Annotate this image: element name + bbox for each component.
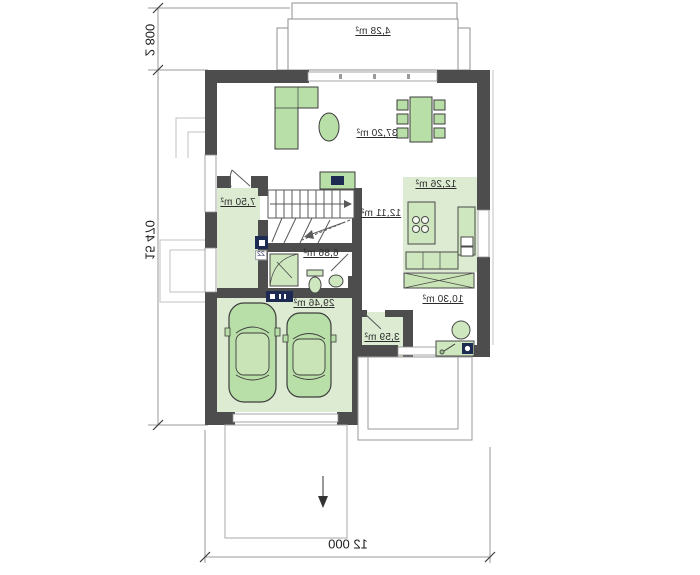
room-label-hall: 12,11 m²: [361, 209, 401, 219]
sink-icon: [461, 247, 473, 256]
dining-table-icon: [410, 97, 432, 142]
utility-fixtures: [436, 321, 474, 356]
dimension-terrace-depth: 2 800: [134, 34, 167, 47]
room-label-garage: 29,46 m²: [293, 299, 334, 309]
tv-icon: [331, 176, 344, 185]
room-label-living: 37,20 m²: [356, 129, 397, 139]
chair-icon: [434, 100, 445, 110]
room-label-terrace: 4,28 m²: [355, 27, 390, 37]
room-label-utility: 10,30 m²: [422, 295, 463, 305]
floor-plan: 4,28 m² 37,20 m² 12,26 m² 7,50 m² 12,11 …: [0, 0, 700, 575]
entrance-porch: [358, 357, 472, 440]
dimension-total-width: 12 000: [328, 538, 368, 551]
kitchen-island-icon: [408, 202, 435, 244]
stairs: [268, 190, 354, 243]
coffee-table-icon: [319, 113, 339, 141]
chair-icon: [397, 114, 408, 124]
cooktop-burner-icon: [413, 217, 420, 224]
chair-icon: [397, 128, 408, 138]
chair-icon: [397, 100, 408, 110]
cooktop-burner-icon: [422, 217, 429, 224]
car-icon: [283, 313, 336, 397]
chair-icon: [434, 128, 445, 138]
bathroom-fixtures: [270, 254, 343, 293]
room-label-room: 7,50 m²: [220, 198, 255, 208]
sofa-icon: [275, 87, 318, 149]
room-label-boiler: 3,59 m²: [364, 333, 399, 343]
cooktop-burner-icon: [422, 226, 429, 233]
wardrobe-icon: [404, 273, 474, 288]
car-icon: [225, 303, 280, 402]
dimension-total-height: 15 470: [130, 234, 170, 247]
garage-door-tag-icon: [266, 291, 293, 302]
toilet-icon: [309, 277, 321, 293]
window-tag-icon: [255, 236, 268, 249]
toilet-tank-icon: [307, 270, 323, 276]
water-heater-icon: [452, 321, 470, 339]
driveway: [225, 425, 347, 538]
window-tag-label: 22: [255, 250, 267, 260]
kitchen-lower-counter-icon: [406, 252, 458, 269]
cooktop-burner-icon: [413, 226, 420, 233]
room-label-kitchen: 12,26 m²: [415, 180, 456, 190]
chair-icon: [434, 114, 445, 124]
floor-plan-linework: [0, 0, 700, 575]
washbasin-icon: [329, 275, 343, 287]
sink-icon: [461, 237, 473, 246]
room-label-bathroom: 6,86 m²: [303, 249, 338, 259]
